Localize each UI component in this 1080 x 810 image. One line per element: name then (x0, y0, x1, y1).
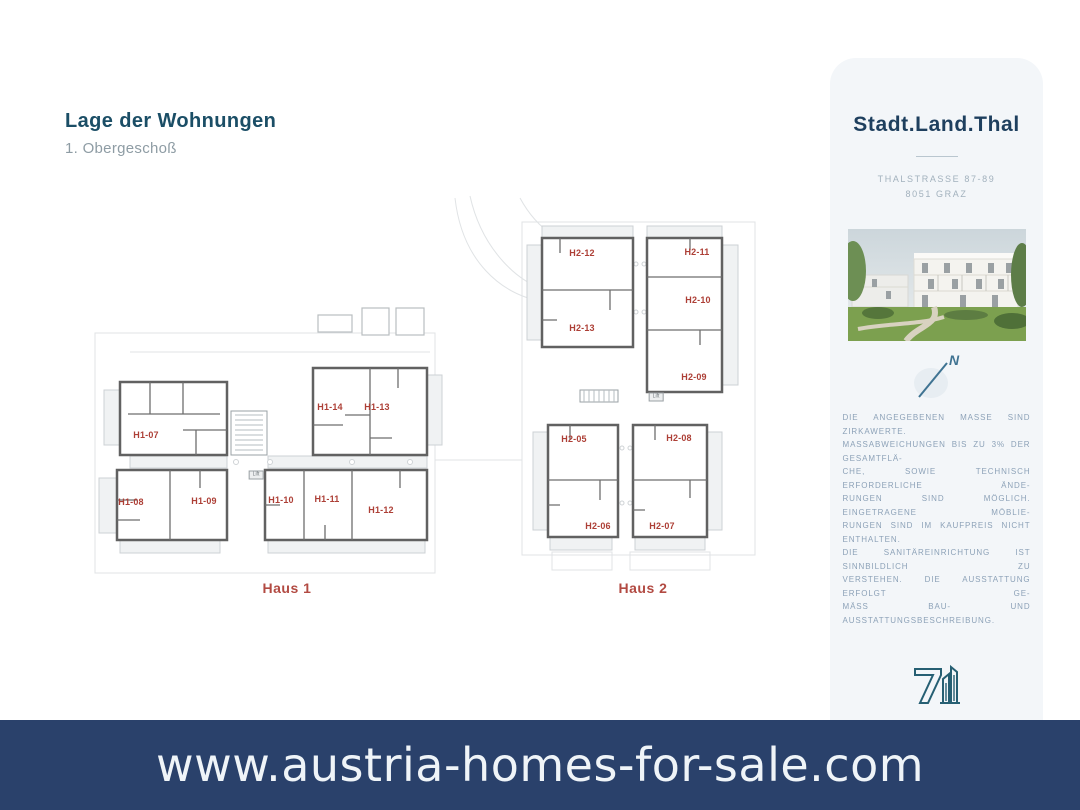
disclaimer-line: RUNGEN SIND IM KAUFPREIS NICHT ENTHALTEN… (843, 519, 1031, 546)
divider (916, 156, 958, 157)
disclaimer-line: MASSABWEICHUNGEN BIS ZU 3% DER GESAMTFLÄ… (843, 438, 1031, 465)
company-logo-icon (911, 659, 963, 709)
disclaimer-line: DIE SANITÄREINRICHTUNG IST SINNBILDLICH … (843, 546, 1031, 573)
project-address: THALSTRASSE 87-89 8051 GRAZ (830, 172, 1043, 202)
site-url: www.austria-homes-for-sale.com (156, 738, 924, 792)
footer-banner: www.austria-homes-for-sale.com (0, 720, 1080, 810)
disclaimer-line: MÄSS BAU- UND AUSSTATTUNGSBESCHREIBUNG. (843, 600, 1031, 627)
disclaimer-line: RUNGEN SIND MÖGLICH. EINGETRAGENE MÖBLIE… (843, 492, 1031, 519)
building-photo (848, 229, 1026, 341)
disclaimer-line: DIE ANGEGEBENEN MASSE SIND ZIRKAWERTE. (843, 411, 1031, 438)
project-name: Stadt.Land.Thal (830, 58, 1043, 137)
disclaimer-line: CHE, SOWIE TECHNISCH ERFORDERLICHE ÄNDE- (843, 465, 1031, 492)
project-city: 8051 GRAZ (830, 187, 1043, 202)
north-label: N (949, 352, 960, 368)
project-street: THALSTRASSE 87-89 (830, 172, 1043, 187)
disclaimer-text: DIE ANGEGEBENEN MASSE SIND ZIRKAWERTE.MA… (843, 411, 1031, 627)
north-arrow-icon: N (905, 349, 969, 405)
info-card: Stadt.Land.Thal THALSTRASSE 87-89 8051 G… (830, 58, 1043, 720)
disclaimer-line: VERSTEHEN. DIE AUSSTATTUNG ERFOLGT GE- (843, 573, 1031, 600)
